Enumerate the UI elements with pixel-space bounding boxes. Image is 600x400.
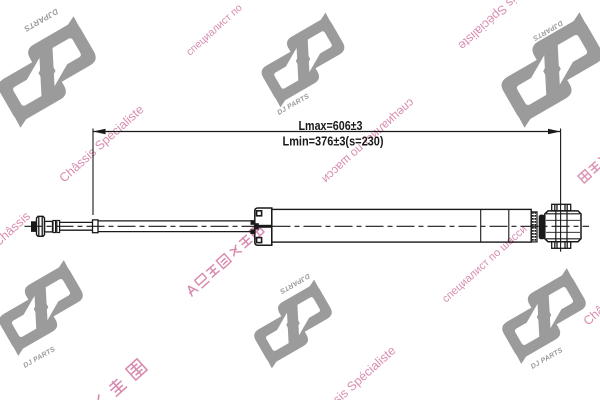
svg-text:DJPARTS: DJPARTS [22, 7, 60, 34]
svg-text:специалист по шасси: специалист по шасси [440, 223, 529, 305]
svg-text:Lmax=606±3: Lmax=606±3 [299, 119, 363, 133]
svg-text:Châssis Spécialiste: Châssis Spécialiste [57, 102, 147, 185]
svg-text:DJ PARTS: DJ PARTS [22, 346, 56, 370]
svg-text:Châssis Spécialiste: Châssis Spécialiste [309, 343, 399, 400]
svg-text:Châssis: Châssis [0, 209, 33, 249]
svg-text:Châssis Spécialiste: Châssis Spécialiste [455, 0, 545, 53]
svg-text:Lmin=376±3(s=230): Lmin=376±3(s=230) [283, 135, 384, 149]
svg-text:специалист по: специалист по [184, 2, 245, 59]
